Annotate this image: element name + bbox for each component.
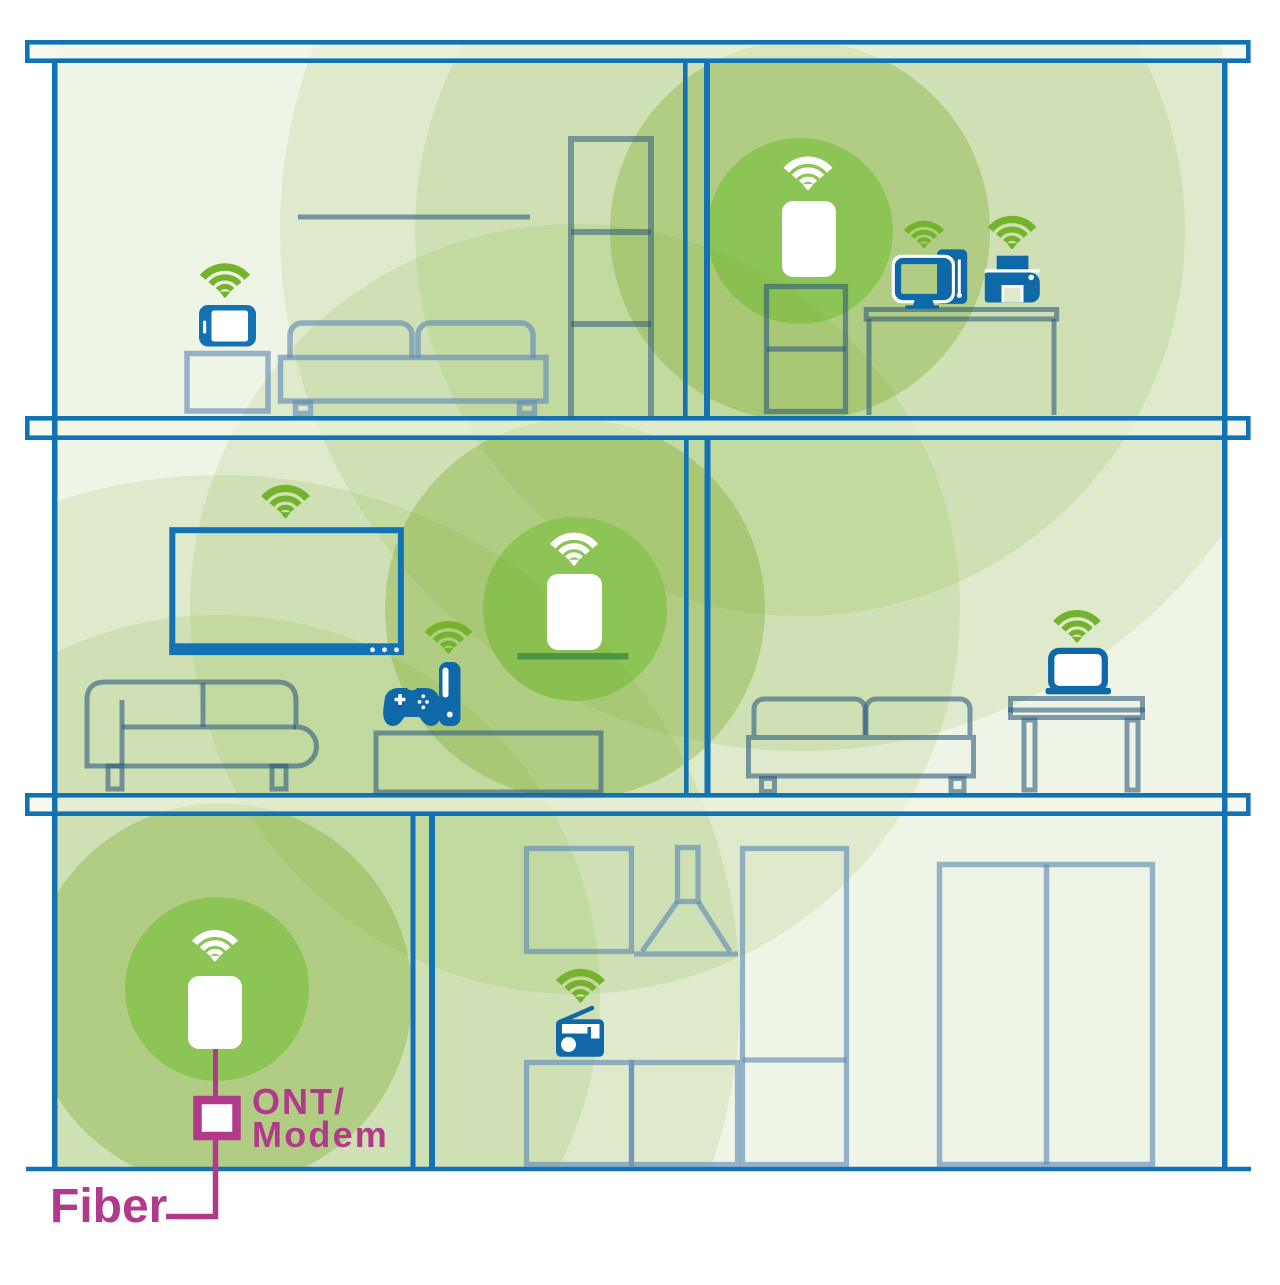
svg-text:Modem: Modem bbox=[252, 1114, 389, 1155]
svg-text:Fiber: Fiber bbox=[50, 1180, 167, 1233]
